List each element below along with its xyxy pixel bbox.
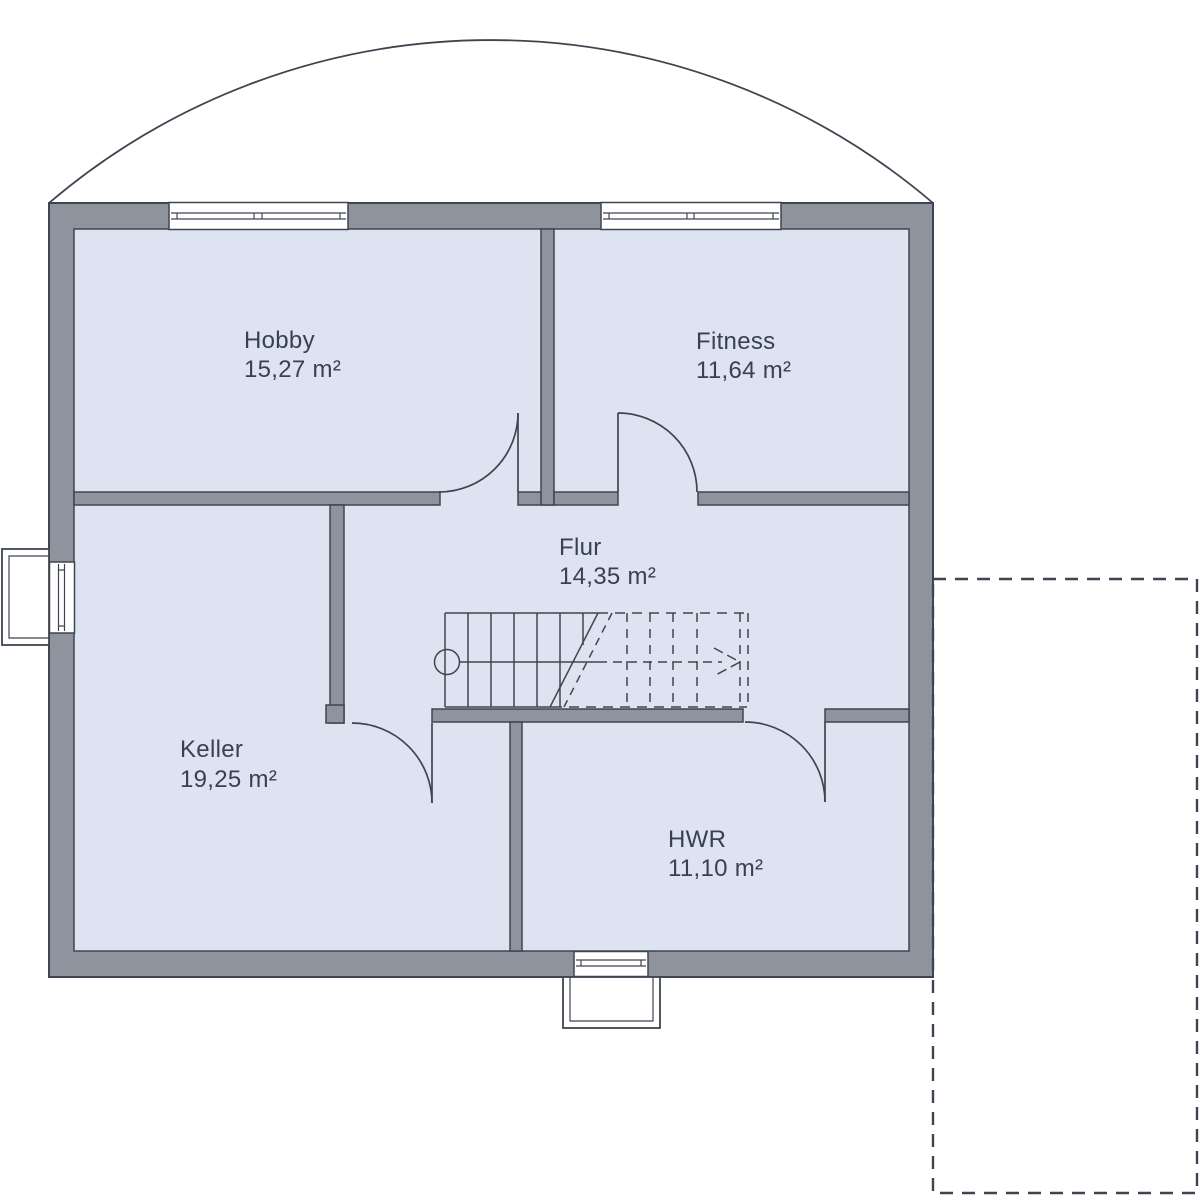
wall-segment xyxy=(330,505,344,723)
wall-segment xyxy=(510,722,522,951)
window-top-right xyxy=(601,203,781,230)
room-label-hwr: HWR xyxy=(668,826,726,853)
wall-segment xyxy=(554,492,618,505)
room-label-hobby: Hobby xyxy=(244,327,315,354)
garage-dashed-outline xyxy=(933,579,1197,1193)
wall-segment xyxy=(825,709,909,722)
floor-plan-page: Hobby 15,27 m² Fitness 11,64 m² Flur 14,… xyxy=(0,0,1200,1200)
wall-segment xyxy=(432,709,743,722)
light-well-bottom xyxy=(563,977,660,1028)
light-well-left xyxy=(2,549,49,645)
room-label-keller: Keller xyxy=(180,736,243,763)
room-label-flur: Flur xyxy=(559,534,602,561)
roof-arc xyxy=(49,40,933,203)
room-label-fitness: Fitness xyxy=(696,328,775,355)
window-top-left xyxy=(169,203,348,230)
window-left xyxy=(50,562,75,633)
wall-segment xyxy=(698,492,909,505)
room-area-fitness: 11,64 m² xyxy=(696,357,791,384)
wall-segment xyxy=(541,229,554,505)
wall-segment xyxy=(326,705,344,723)
floor-plan-svg: Hobby 15,27 m² Fitness 11,64 m² Flur 14,… xyxy=(0,0,1200,1200)
room-area-flur: 14,35 m² xyxy=(559,563,656,590)
light-well-outer xyxy=(563,977,660,1028)
room-area-keller: 19,25 m² xyxy=(180,766,277,793)
wall-segment xyxy=(74,492,440,505)
window-bottom xyxy=(574,952,648,977)
interior-floor xyxy=(74,229,909,951)
room-area-hobby: 15,27 m² xyxy=(244,356,341,383)
room-area-hwr: 11,10 m² xyxy=(668,855,763,882)
